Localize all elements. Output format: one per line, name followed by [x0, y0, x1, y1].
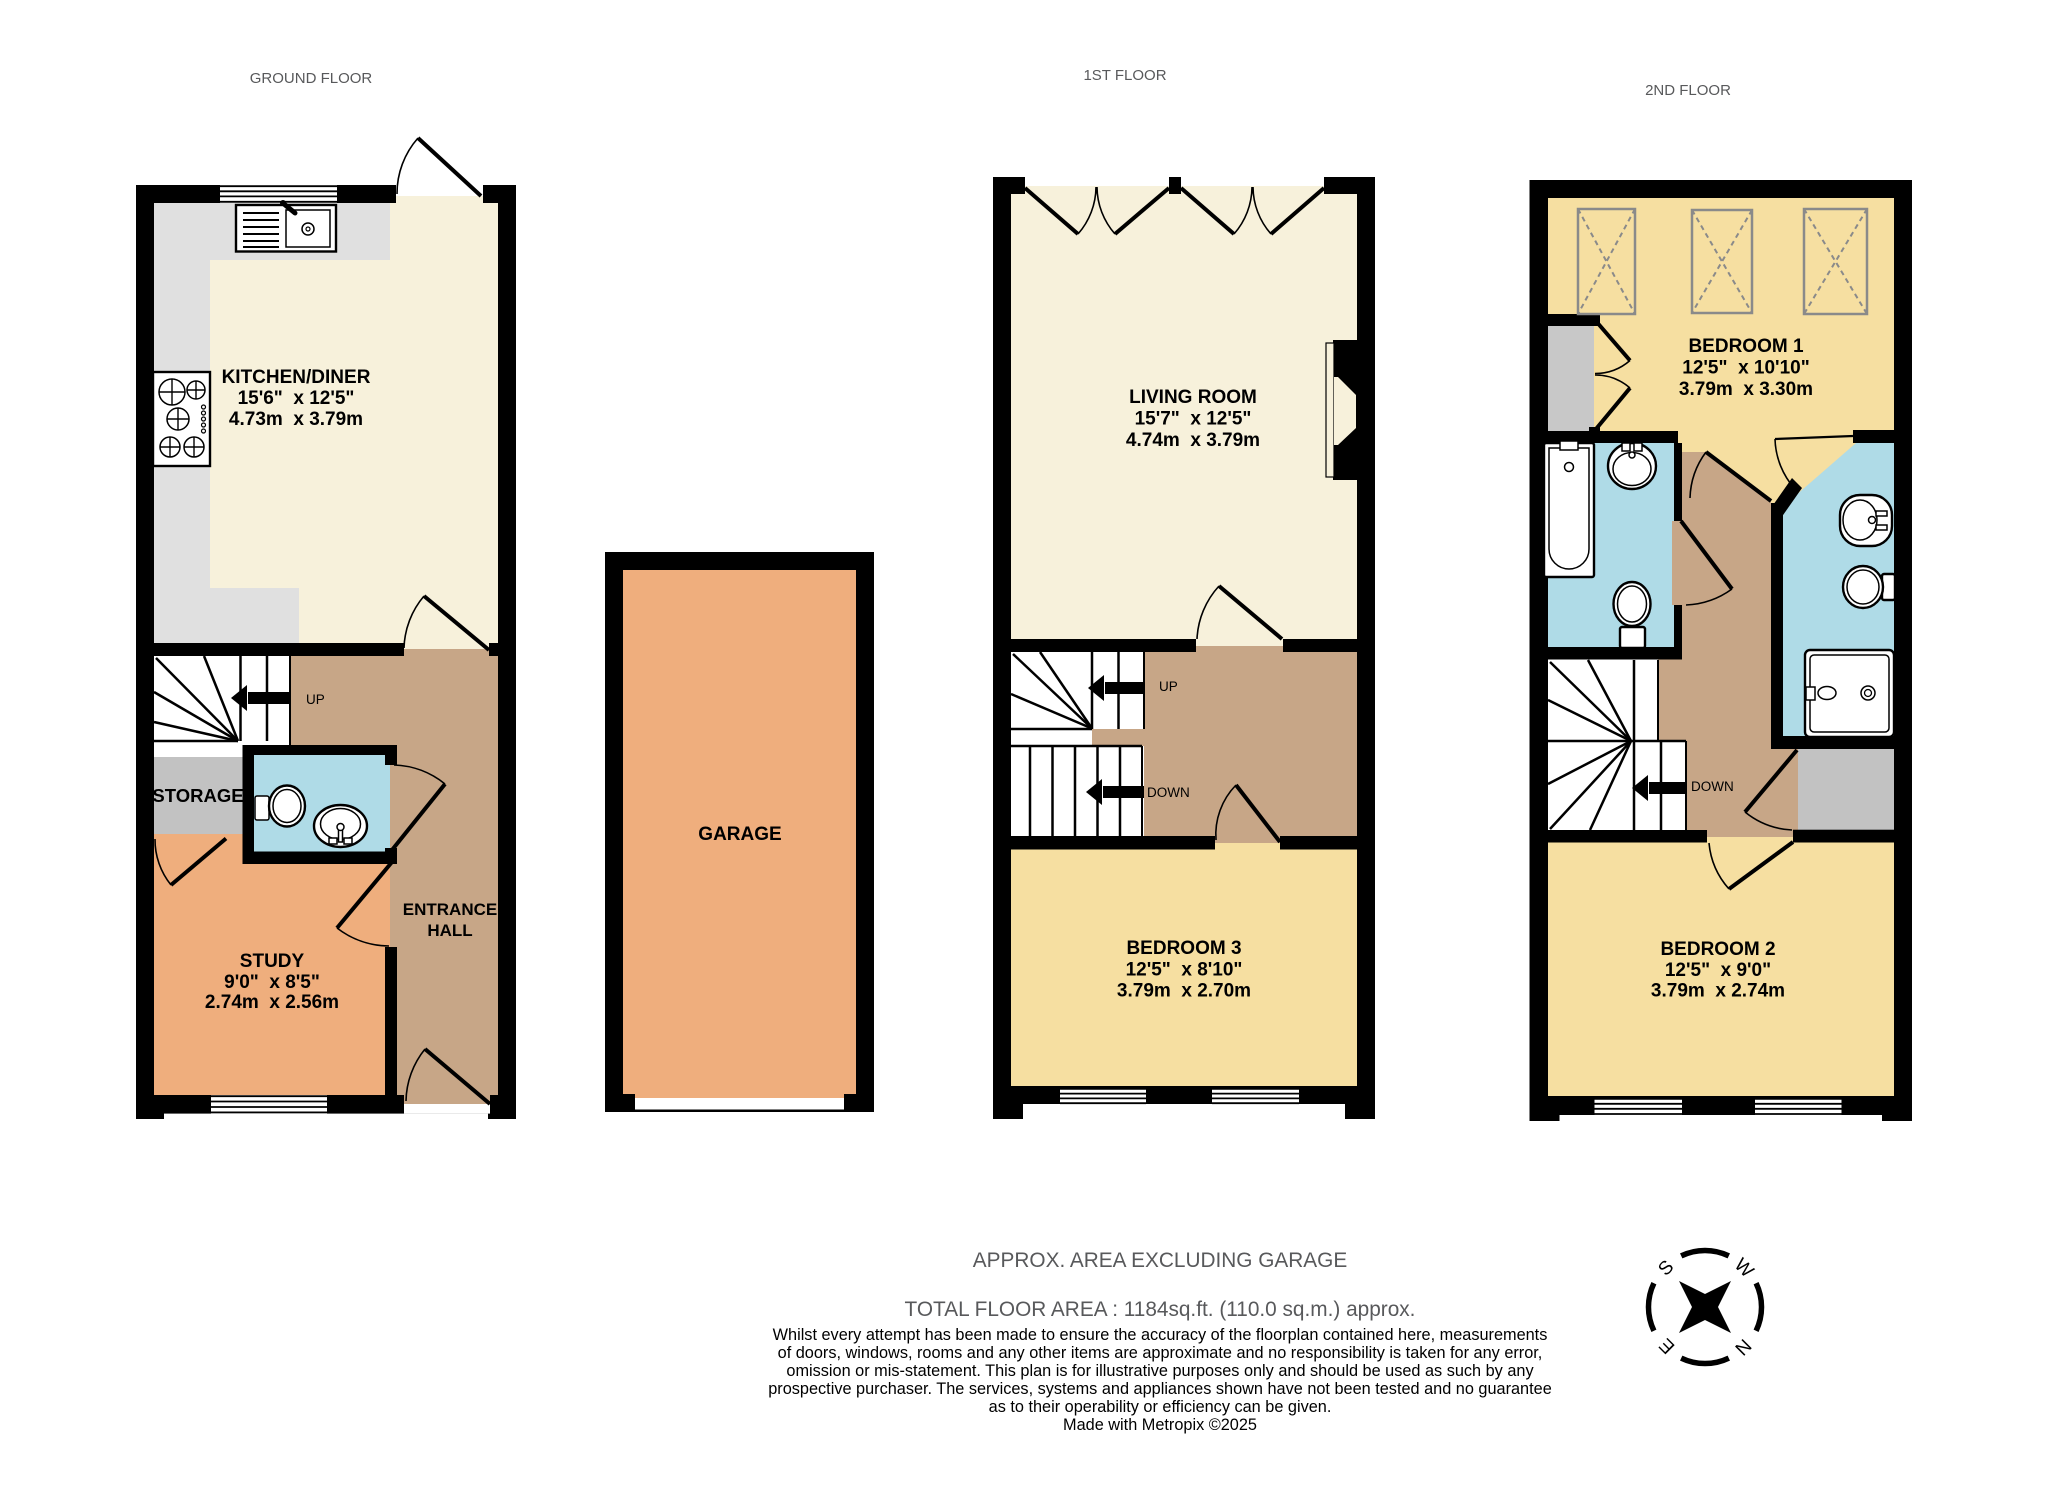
- svg-text:UP: UP: [306, 692, 325, 707]
- svg-text:KITCHEN/DINER: KITCHEN/DINER: [222, 367, 371, 388]
- svg-text:4.74m x 3.79m: 4.74m x 3.79m: [1126, 430, 1260, 451]
- svg-text:15'6" x 12'5": 15'6" x 12'5": [238, 388, 355, 409]
- svg-text:DOWN: DOWN: [1691, 779, 1734, 794]
- svg-text:prospective purchaser. The ser: prospective purchaser. The services, sys…: [768, 1380, 1552, 1398]
- svg-text:BEDROOM 3: BEDROOM 3: [1126, 938, 1241, 959]
- svg-text:GROUND FLOOR: GROUND FLOOR: [250, 70, 373, 87]
- svg-text:ENTRANCE: ENTRANCE: [403, 900, 497, 919]
- svg-text:TOTAL FLOOR AREA : 1184sq.ft.: TOTAL FLOOR AREA : 1184sq.ft. (110.0 sq.…: [905, 1298, 1416, 1321]
- svg-text:9'0" x 8'5": 9'0" x 8'5": [224, 972, 320, 993]
- svg-text:12'5" x 10'10": 12'5" x 10'10": [1682, 358, 1809, 379]
- svg-text:3.79m x 3.30m: 3.79m x 3.30m: [1679, 379, 1813, 400]
- svg-text:UP: UP: [1159, 679, 1178, 694]
- svg-text:2.74m x 2.56m: 2.74m x 2.56m: [205, 992, 339, 1013]
- svg-text:DOWN: DOWN: [1147, 785, 1190, 800]
- svg-text:3.79m x 2.74m: 3.79m x 2.74m: [1651, 981, 1785, 1002]
- svg-text:APPROX. AREA EXCLUDING GARAGE: APPROX. AREA EXCLUDING GARAGE: [973, 1249, 1347, 1272]
- svg-text:4.73m x 3.79m: 4.73m x 3.79m: [229, 409, 363, 430]
- svg-text:BEDROOM 1: BEDROOM 1: [1688, 336, 1804, 357]
- svg-text:Whilst every attempt has been: Whilst every attempt has been made to en…: [773, 1326, 1548, 1344]
- svg-text:Made with Metropix ©2025: Made with Metropix ©2025: [1063, 1416, 1257, 1434]
- svg-text:as to their operability or eff: as to their operability or efficiency ca…: [989, 1398, 1332, 1416]
- svg-text:3.79m x 2.70m: 3.79m x 2.70m: [1117, 981, 1251, 1002]
- svg-text:2ND FLOOR: 2ND FLOOR: [1645, 82, 1731, 99]
- svg-text:STORAGE: STORAGE: [152, 785, 243, 806]
- svg-text:GARAGE: GARAGE: [698, 824, 781, 845]
- svg-text:12'5" x 9'0": 12'5" x 9'0": [1665, 960, 1771, 981]
- svg-text:BEDROOM 2: BEDROOM 2: [1660, 939, 1775, 960]
- svg-text:omission or mis-statement. Thi: omission or mis-statement. This plan is …: [786, 1362, 1534, 1380]
- svg-text:12'5" x 8'10": 12'5" x 8'10": [1126, 960, 1243, 981]
- svg-text:1ST FLOOR: 1ST FLOOR: [1083, 67, 1166, 84]
- svg-text:of doors, windows, rooms and a: of doors, windows, rooms and any other i…: [778, 1344, 1543, 1362]
- svg-text:HALL: HALL: [427, 921, 472, 940]
- svg-text:15'7" x 12'5": 15'7" x 12'5": [1135, 409, 1252, 430]
- svg-text:LIVING ROOM: LIVING ROOM: [1129, 387, 1257, 408]
- svg-text:STUDY: STUDY: [240, 951, 305, 972]
